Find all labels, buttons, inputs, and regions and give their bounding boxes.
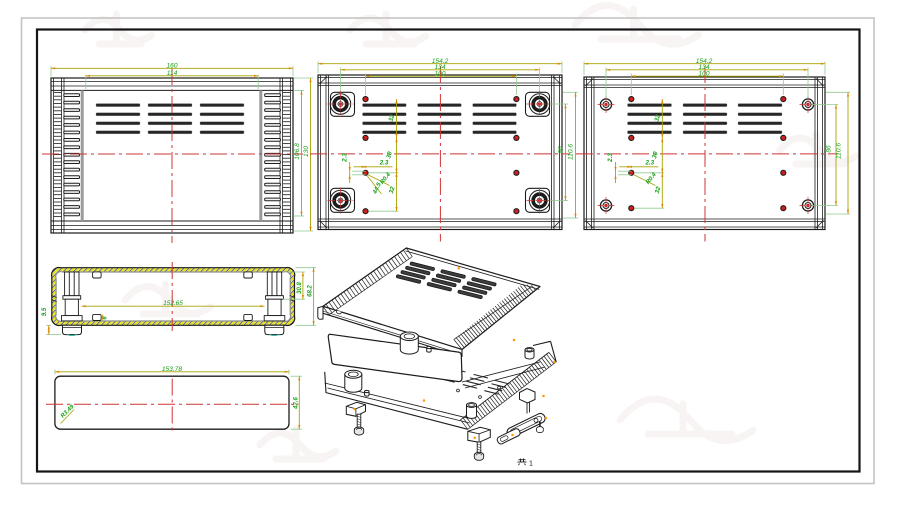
svg-text:160: 160 [166, 62, 177, 69]
svg-text:68.2: 68.2 [307, 285, 313, 297]
svg-text:106.8: 106.8 [294, 143, 301, 160]
svg-text:1: 1 [529, 459, 533, 468]
svg-text:130: 130 [303, 146, 310, 157]
svg-text:110.6: 110.6 [836, 143, 843, 159]
svg-text:86: 86 [557, 146, 564, 154]
svg-text:114: 114 [167, 70, 178, 77]
svg-text:100: 100 [434, 70, 445, 77]
svg-text:2.3: 2.3 [341, 153, 348, 163]
svg-text:9.5: 9.5 [42, 307, 48, 316]
svg-text:153.78: 153.78 [162, 366, 183, 373]
svg-text:2.3: 2.3 [644, 159, 654, 166]
svg-text:2.3: 2.3 [379, 159, 389, 166]
svg-text:30.8: 30.8 [297, 282, 303, 294]
svg-text:42.6: 42.6 [293, 397, 299, 410]
svg-text:86: 86 [826, 145, 833, 153]
svg-text:2.3: 2.3 [607, 153, 614, 163]
svg-text:152.65: 152.65 [163, 300, 183, 307]
svg-text:110.6: 110.6 [567, 144, 574, 160]
svg-text:100: 100 [698, 70, 709, 77]
